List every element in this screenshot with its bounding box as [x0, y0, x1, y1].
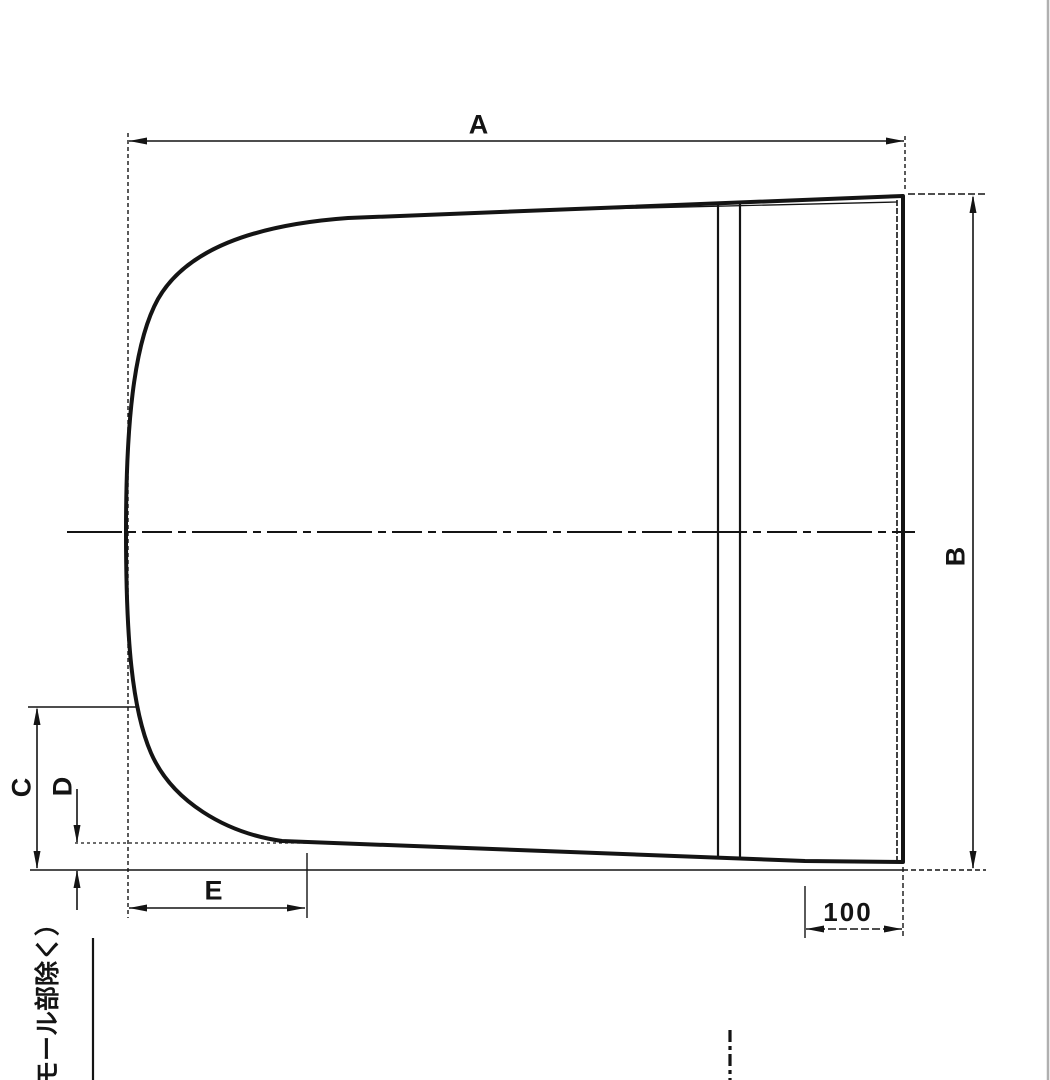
part-outline	[126, 196, 903, 862]
arrowhead-100-right	[884, 926, 902, 933]
arrowhead-b-bottom	[970, 851, 977, 869]
drawing-canvas	[0, 0, 1050, 1080]
arrowhead-e-left	[129, 905, 147, 912]
scanned-technical-drawing: A B C D E 100 モール部除く）	[0, 0, 1050, 1080]
dimension-label-e: E	[204, 878, 223, 905]
arrowhead-c-top	[34, 707, 41, 725]
arrowhead-c-bottom	[34, 851, 41, 869]
arrowhead-a-left	[129, 138, 147, 145]
dimension-label-100: 100	[823, 899, 872, 925]
dimension-label-d: D	[50, 776, 77, 797]
vertical-note-text: モール部除く）	[36, 911, 61, 1080]
dimension-label-c: C	[9, 777, 36, 798]
arrowhead-a-right	[886, 138, 904, 145]
arrowhead-b-top	[970, 195, 977, 213]
arrowhead-d-up	[74, 870, 81, 888]
arrowhead-e-right	[287, 905, 305, 912]
arrowhead-d-down	[74, 825, 81, 843]
dimension-label-a: A	[469, 112, 490, 139]
dimension-label-b: B	[943, 546, 970, 567]
arrowhead-100-left	[806, 926, 824, 933]
